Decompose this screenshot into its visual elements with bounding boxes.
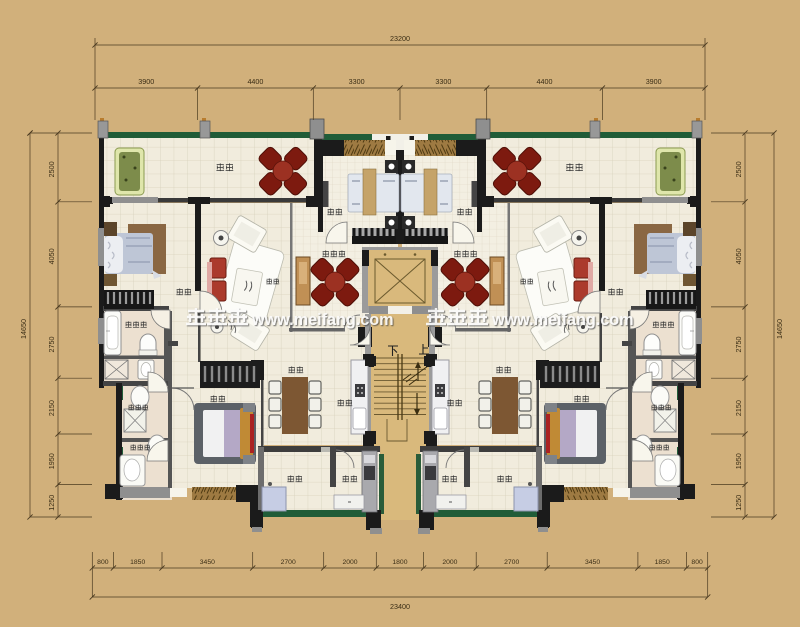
svg-text:3900: 3900 bbox=[138, 77, 154, 86]
svg-text:3450: 3450 bbox=[200, 559, 215, 566]
svg-text:2700: 2700 bbox=[504, 559, 519, 566]
svg-text:800: 800 bbox=[97, 559, 109, 566]
svg-text:23400: 23400 bbox=[390, 602, 410, 611]
svg-text:1250: 1250 bbox=[734, 495, 743, 511]
svg-text:2750: 2750 bbox=[47, 337, 56, 353]
svg-text:14650: 14650 bbox=[19, 319, 28, 339]
svg-text:www.meifang.com: www.meifang.com bbox=[251, 311, 394, 329]
svg-text:2750: 2750 bbox=[734, 337, 743, 353]
svg-text:www.meifang.com: www.meifang.com bbox=[491, 311, 634, 329]
svg-text:1850: 1850 bbox=[655, 559, 670, 566]
svg-text:1250: 1250 bbox=[47, 495, 56, 511]
svg-text:2150: 2150 bbox=[47, 400, 56, 416]
svg-text:4050: 4050 bbox=[734, 248, 743, 264]
svg-text:3900: 3900 bbox=[646, 77, 662, 86]
svg-text:1800: 1800 bbox=[392, 559, 407, 566]
svg-text:2500: 2500 bbox=[734, 161, 743, 177]
svg-text:3450: 3450 bbox=[585, 559, 600, 566]
svg-text:3300: 3300 bbox=[435, 77, 451, 86]
svg-text:2000: 2000 bbox=[442, 559, 457, 566]
svg-text:3300: 3300 bbox=[349, 77, 365, 86]
svg-text:14650: 14650 bbox=[775, 319, 784, 339]
svg-text:2500: 2500 bbox=[47, 161, 56, 177]
svg-text:1950: 1950 bbox=[47, 453, 56, 469]
svg-text:2150: 2150 bbox=[734, 400, 743, 416]
svg-text:2000: 2000 bbox=[342, 559, 357, 566]
svg-text:4400: 4400 bbox=[537, 77, 553, 86]
svg-text:1950: 1950 bbox=[734, 453, 743, 469]
svg-text:1850: 1850 bbox=[130, 559, 145, 566]
svg-text:4400: 4400 bbox=[247, 77, 263, 86]
svg-text:23200: 23200 bbox=[390, 34, 410, 43]
svg-text:2700: 2700 bbox=[281, 559, 296, 566]
svg-text:800: 800 bbox=[691, 559, 703, 566]
svg-text:4050: 4050 bbox=[47, 248, 56, 264]
